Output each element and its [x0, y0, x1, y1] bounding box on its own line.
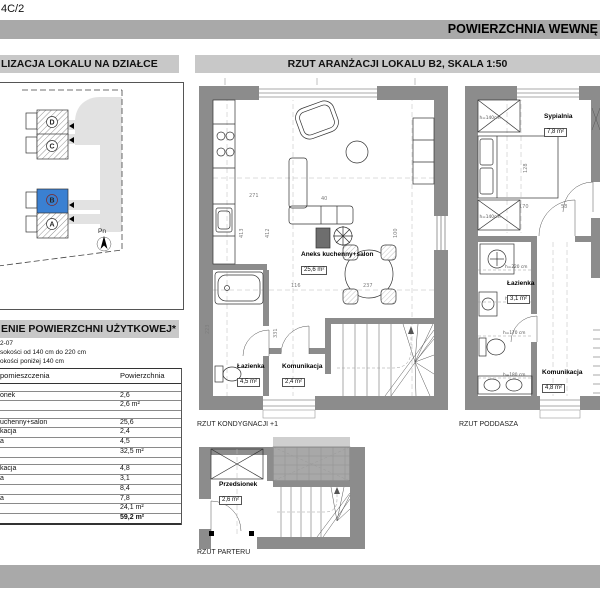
svg-text:170: 170 [519, 204, 529, 210]
room-label-salon: Aneks kuchenny+salon 25,6 m² [301, 251, 373, 276]
table-row [0, 411, 181, 419]
armchair-icon [293, 98, 342, 142]
col-room-header: pomieszczenia [0, 369, 120, 383]
room-label-bath-k1: Łazienka 4,5 m² [237, 363, 264, 388]
table-row: kacja 2,4 [0, 428, 181, 438]
top-banner: POWIERZCHNIA WEWNĘ [0, 20, 600, 39]
table-note-3: okości poniżej 140 cm [0, 358, 64, 365]
table-row-subtotal: 24,1 m² [0, 504, 181, 514]
drawing-sheet: 4C/2 POWIERZCHNIA WEWNĘ LIZACJA LOKALU N… [0, 0, 600, 600]
svg-text:237: 237 [363, 283, 373, 289]
plant-icon [333, 226, 353, 246]
table-note-1: 2-07 [0, 340, 13, 347]
double-sink-icon [478, 376, 532, 394]
table-row-total: 59,2 m² [0, 514, 181, 525]
staircase [277, 487, 350, 537]
svg-text:413: 413 [239, 228, 245, 238]
svg-text:100: 100 [393, 228, 399, 238]
svg-text:412: 412 [265, 228, 271, 238]
table-row: a 3,1 [0, 475, 181, 485]
tv-stand-icon [316, 228, 330, 248]
room-label-entry: Przedsionek 2,6 m² [219, 481, 257, 506]
room-label-hall-k1: Komunikacja 2,4 m² [282, 363, 322, 388]
north-label: Pn [98, 228, 106, 235]
svg-text:h=170 cm: h=170 cm [503, 330, 525, 336]
caption-attic: RZUT PODDASZA [459, 421, 518, 428]
svg-text:128: 128 [523, 163, 529, 173]
table-note-2: sokości od 140 cm do 220 cm [0, 349, 86, 356]
room-label-bath-attic: Łazienka 3,1 m² [507, 280, 534, 305]
svg-text:h=180 cm: h=180 cm [503, 372, 525, 378]
table-row [0, 384, 181, 392]
site-panel-title: LIZACJA LOKALU NA DZIAŁCE [0, 55, 179, 73]
col-area-header: Powierzchnia [120, 369, 181, 383]
table-row: a 4,5 [0, 438, 181, 448]
footer-band [0, 565, 600, 588]
area-table: pomieszczenia Powierzchnia onek 2,6 2,6 … [0, 368, 182, 525]
cabinet-icon [413, 118, 434, 184]
building-c-label: C [49, 144, 54, 151]
kitchen-counter [213, 100, 235, 264]
svg-text:h=220 cm: h=220 cm [505, 264, 527, 270]
hall-door [281, 326, 309, 354]
sofa-icon [289, 158, 307, 208]
table-row [0, 458, 181, 466]
site-plan-drawing: D C B A Pn [0, 82, 183, 308]
svg-text:271: 271 [249, 193, 259, 199]
toilet-icon [215, 366, 223, 382]
building-b-label: B [49, 198, 54, 205]
plans-panel-title: RZUT ARANŻACJI LOKALU B2, SKALA 1:50 [195, 55, 600, 73]
table-row-subtotal: 32,5 m² [0, 448, 181, 458]
svg-text:h=140cm: h=140cm [479, 115, 500, 121]
site-buildings [26, 110, 68, 238]
toilet-icon [479, 338, 486, 356]
building-a-label: A [49, 222, 54, 229]
room-label-hall-attic: Komunikacja 4,8 m² [542, 369, 582, 394]
staircase [337, 324, 434, 396]
area-table-title: ENIE POWIERZCHNI UŻYTKOWEJ* [0, 320, 179, 338]
floor-plan-level1: 271 413 412 40 116 237 100 223 331 [197, 78, 450, 420]
table-row: uchenny+salon 25,6 [0, 419, 181, 429]
doc-code: 4C/2 [1, 3, 24, 15]
svg-text:331: 331 [273, 328, 279, 338]
svg-text:223: 223 [205, 324, 211, 334]
side-table-icon [346, 141, 368, 163]
building-d-label: D [49, 120, 54, 127]
entry-door [209, 501, 254, 536]
site-road [62, 97, 122, 232]
bathtub-icon [215, 272, 263, 304]
svg-text:h=140cm: h=140cm [479, 214, 500, 220]
caption-ground: RZUT PARTERU [197, 549, 250, 556]
table-row-subtotal: 2,6 m² [0, 401, 181, 411]
table-row: a 7,8 [0, 495, 181, 505]
svg-text:40: 40 [321, 196, 327, 202]
svg-text:116: 116 [291, 283, 301, 289]
svg-text:58: 58 [561, 204, 567, 210]
terrace [273, 437, 350, 481]
table-row: onek 2,6 [0, 392, 181, 402]
stove-icon [217, 132, 225, 140]
caption-level1: RZUT KONDYGNACJI +1 [197, 421, 278, 428]
table-row: kacja 4,8 [0, 465, 181, 475]
room-label-bedroom: Sypialnia 7,8 m² [544, 113, 573, 138]
bed-icon [478, 136, 558, 198]
table-row: 8,4 [0, 485, 181, 495]
walls [465, 86, 600, 410]
top-banner-title: POWIERZCHNIA WEWNĘ [448, 22, 598, 36]
table-header-row: pomieszczenia Powierzchnia [0, 369, 181, 384]
dimension-labels: h=140cm h=140cm 170 58 128 h=220 cm h=20… [479, 115, 567, 378]
